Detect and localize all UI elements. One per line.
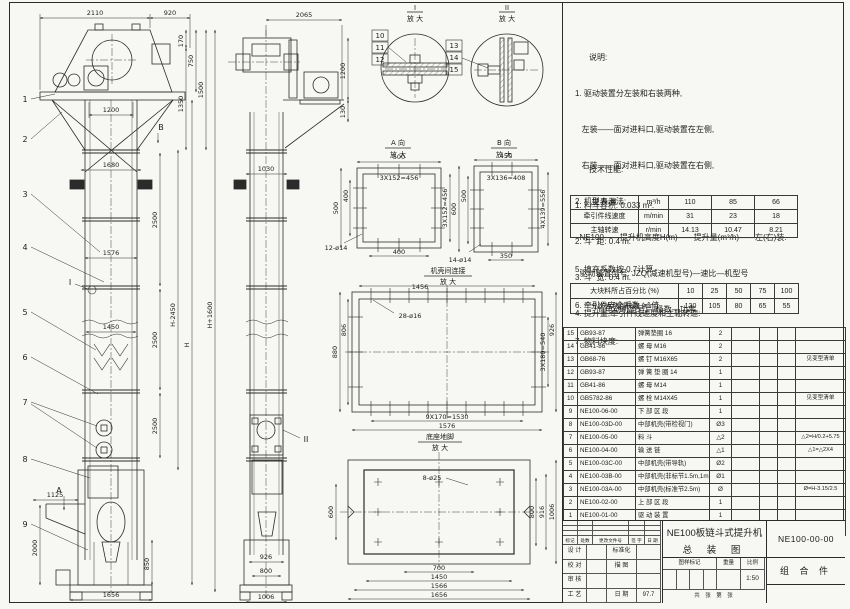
cell-qty: Ø3 (710, 419, 732, 432)
cell-code: NE100-03D-00 (578, 419, 636, 432)
cell-name: 弹 簧 垫 圈 14 (636, 367, 710, 380)
cell-no: 5 (564, 458, 578, 471)
detail-title: I (414, 4, 416, 12)
dim-label: 1450 (431, 573, 448, 581)
right-panel: 说明: 1. 驱动装置分左装和右装两种, 左装——面对进料口,驱动装置在左侧, … (562, 2, 845, 603)
cell-unit_w (760, 484, 778, 497)
cell-c3: 8.21 (755, 224, 798, 238)
cell-c3: 18 (755, 210, 798, 224)
holes-label: 8-ø25 (423, 474, 442, 482)
title-block-revision-area: 标记 处数 更改文件号 签 字 日 期 设 计 标准化 校 对 描 图 审 核 … (563, 521, 663, 603)
cell-no: 8 (564, 419, 578, 432)
cell-unit_w (760, 406, 778, 419)
detail-subtitle: 放 大 (440, 277, 456, 286)
table-row: 提 升 量m³/h1108566 (571, 196, 798, 210)
table-row: 4NE100-03B-00中部机壳(非标节1.5m,1m)Ø1 (564, 471, 846, 484)
cell-remark (796, 497, 846, 510)
dim-label: 3X152=456 (380, 174, 419, 182)
cell-material (732, 497, 760, 510)
cell-name: 下 部 区 段 (636, 406, 710, 419)
table-row: 允许大块料块度 (mm)130105806555 (571, 299, 799, 314)
dim-label: 400 (342, 190, 350, 202)
cell-code: GB5782-86 (578, 393, 636, 406)
dim-label: 750 (187, 55, 195, 67)
cell-remark (796, 458, 846, 471)
cell-name: 弹簧垫圈 16 (636, 328, 710, 341)
cell-no: 4 (564, 471, 578, 484)
dim-label: 1576 (439, 422, 456, 430)
dim-label: H-2450 (169, 303, 177, 327)
detail-ii (446, 12, 543, 106)
cell-qty: 1 (710, 367, 732, 380)
tech-title: 技术性能: (575, 164, 700, 176)
cell-unit_w (760, 341, 778, 354)
cell-unit: r/min (639, 224, 669, 238)
cell-material (732, 328, 760, 341)
cell-name: 中部机壳(非标节1.5m,1m) (636, 471, 710, 484)
cell-c5: 55 (775, 299, 799, 314)
dim-label: 926 (548, 324, 556, 336)
table-row: 5NE100-03C-00中部机壳(带导轨)Ø2 (564, 458, 846, 471)
balloon-number: 8 (22, 455, 27, 464)
product-name: NE100板链斗式提升机 (663, 525, 766, 539)
dim-label: 9X170=1530 (426, 413, 469, 421)
cell-remark (796, 419, 846, 432)
callout-number: 11 (376, 44, 385, 52)
cell-code: GB41-86 (578, 341, 636, 354)
cell-total_w (778, 471, 796, 484)
cell-material (732, 406, 760, 419)
lump-size-table: 大块料所占百分比 (%)10255075100允许大块料块度 (mm)13010… (570, 283, 799, 314)
cell-material (732, 393, 760, 406)
view-title: B 向 (497, 138, 511, 147)
holes-label: 28-ø16 (399, 312, 422, 320)
cell-qty: Ø2 (710, 458, 732, 471)
cell-c2: 23 (712, 210, 755, 224)
dim-label: 3X152=456 (441, 189, 449, 228)
balloon-number: 4 (22, 243, 27, 252)
cell-label: 牵引件线速度 (571, 210, 639, 224)
date-value: 97.7 (637, 589, 661, 604)
role-label: 校 对 (563, 560, 587, 575)
tech-line: 5. 填充系数按 0.7计算. (575, 264, 661, 276)
rev-header: 日 期 (645, 536, 661, 545)
cell-remark (796, 471, 846, 484)
cell-c2: 25 (703, 284, 727, 299)
balloon-number: 2 (22, 135, 27, 144)
cell-unit_w (760, 458, 778, 471)
cell-code: NE100-03B-00 (578, 471, 636, 484)
balloon-number: 1 (22, 95, 27, 104)
dim-label: 1006 (548, 504, 556, 521)
cell-label: 提 升 量 (571, 196, 639, 210)
dim-label: 1500 (197, 82, 205, 99)
cell-material (732, 484, 760, 497)
role-label: 设 计 (563, 545, 587, 560)
note-line: 左装——面对进料口,驱动装置在左侧, (575, 124, 787, 136)
parts-list-table: 15GB93-87弹簧垫圈 16214GB41-86螺 母 M16213GB68… (563, 327, 846, 536)
cell-code: GB68-76 (578, 354, 636, 367)
cell-qty: 1 (710, 380, 732, 393)
dim-label: 2500 (151, 332, 159, 349)
dim-label: 1350 (177, 96, 185, 113)
part-type: 组 合 件 (767, 558, 845, 585)
cell-material (732, 432, 760, 445)
cell-total_w (778, 393, 796, 406)
dim-label: 2000 (31, 540, 39, 557)
detail-subtitle: 放 大 (407, 14, 423, 23)
cell-name: 料 斗 (636, 432, 710, 445)
cell-c4: 75 (751, 284, 775, 299)
cell-c1: 14.13 (669, 224, 712, 238)
cell-name: 中部机壳(带检视门) (636, 419, 710, 432)
cell-material (732, 341, 760, 354)
cell-unit_w (760, 497, 778, 510)
callout-number: 12 (376, 56, 385, 64)
cell-remark: △2=H/0.2+5.75 (796, 432, 846, 445)
view-a-marker: A (56, 486, 62, 495)
cell-unit_w (760, 419, 778, 432)
dim-label: 1576 (103, 249, 120, 257)
callout-number: 10 (376, 32, 385, 40)
cell-name: 螺 母 M14 (636, 380, 710, 393)
cell-unit_w (760, 432, 778, 445)
dim-label: H (183, 342, 191, 347)
cell-remark: Ø=H-3.15/2.5 (796, 484, 846, 497)
cell-unit_w (760, 328, 778, 341)
cell-unit: m/min (639, 210, 669, 224)
table-row: 13GB68-76螺 钉 M16X652见变型清单 (564, 354, 846, 367)
cell-code: GB93-87 (578, 328, 636, 341)
dim-label: 170 (177, 35, 185, 47)
dim-label: 2500 (151, 212, 159, 229)
dim-label: 800 (528, 506, 536, 518)
cell-c5: 100 (775, 284, 799, 299)
cell-c1: 130 (679, 299, 703, 314)
engineering-drawing-sheet: 2110 920 170 750 1350 1500 1200 1680 157… (0, 0, 850, 609)
cell-no: 10 (564, 393, 578, 406)
dim-label: 1450 (103, 323, 120, 331)
title-block: 标记 处数 更改文件号 签 字 日 期 设 计 标准化 校 对 描 图 审 核 … (563, 520, 845, 603)
table-row: 10GB5782-86螺 栓 M14X451见变型清单 (564, 393, 846, 406)
cell-qty: Ø (710, 484, 732, 497)
view-b-marker: B (158, 123, 164, 132)
dim-label: 1006 (258, 593, 275, 601)
dim-label: 4X139=556 (539, 190, 547, 229)
dim-label: 450 (500, 152, 512, 160)
signature-grid: 设 计 标准化 校 对 描 图 审 核 工 艺 日 期 97.7 (563, 545, 662, 603)
cell-material (732, 419, 760, 432)
balloon-number: 9 (22, 520, 27, 529)
revision-grid: 标记 处数 更改文件号 签 字 日 期 (563, 521, 662, 545)
holes-label: 14-ø14 (449, 256, 472, 264)
callout-number: 15 (450, 66, 459, 74)
dim-label: 1200 (339, 63, 347, 80)
cell-name: 中部机壳(带导轨) (636, 458, 710, 471)
cell-qty: 2 (710, 328, 732, 341)
cell-c1: 110 (669, 196, 712, 210)
cell-no: 15 (564, 328, 578, 341)
table-row: 6NE100-04-00输 送 链△1△1=△2X4 (564, 445, 846, 458)
cell-label: 允许大块料块度 (mm) (571, 299, 679, 314)
cell-name: 螺 钉 M16X65 (636, 354, 710, 367)
note-line: 1. 驱动装置分左装和右装两种, (575, 88, 787, 100)
cell-code: NE100-05-00 (578, 432, 636, 445)
title-block-right: NE100-00-00 组 合 件 (767, 521, 845, 603)
view-title: A 向 (391, 138, 405, 147)
dim-label: H+1600 (206, 302, 214, 329)
detail-ii-marker: II (304, 435, 309, 444)
cell-c1: 31 (669, 210, 712, 224)
cell-total_w (778, 380, 796, 393)
cell-remark (796, 380, 846, 393)
table-row: 7NE100-05-00料 斗△2△2=H/0.2+5.75 (564, 432, 846, 445)
detail-title: 底座地脚 (426, 432, 454, 441)
cell-material (732, 445, 760, 458)
cell-qty: △1 (710, 445, 732, 458)
table-row: 9NE100-06-00下 部 区 段1 (564, 406, 846, 419)
balloon-number: 3 (22, 190, 27, 199)
cell-c1: 10 (679, 284, 703, 299)
cell-total_w (778, 419, 796, 432)
detail-title: 机壳间连接 (431, 266, 466, 275)
role-label: 描 图 (607, 560, 637, 575)
rev-header: 处数 (578, 536, 593, 545)
cell-qty: 2 (710, 341, 732, 354)
role-label: 工 艺 (563, 589, 587, 604)
dim-label: 700 (433, 564, 445, 572)
cell-qty: Ø1 (710, 471, 732, 484)
cell-unit_w (760, 354, 778, 367)
cell-qty: 2 (710, 354, 732, 367)
dim-label: 400 (393, 248, 405, 256)
detail-subtitle: 放 大 (432, 443, 448, 452)
cell-total_w (778, 484, 796, 497)
cell-c2: 85 (712, 196, 755, 210)
cell-name: 上 部 区 段 (636, 497, 710, 510)
role-label: 标准化 (607, 545, 637, 560)
dim-label: 1680 (103, 161, 120, 169)
cell-code: NE100-03A-00 (578, 484, 636, 497)
drawing-number: NE100-00-00 (767, 521, 845, 558)
table-row: 11GB41-86螺 母 M141 (564, 380, 846, 393)
cell-total_w (778, 341, 796, 354)
table-row: 主轴转速r/min14.1310.478.21 (571, 224, 798, 238)
dim-label: 3X136=408 (487, 174, 526, 182)
dim-label: 926 (260, 553, 272, 561)
holes-label: 12-ø14 (325, 244, 348, 252)
dim-label: 916 (538, 506, 546, 518)
cell-c3: 66 (755, 196, 798, 210)
callout-number: 14 (450, 54, 459, 62)
cell-material (732, 367, 760, 380)
dim-label: 1656 (103, 591, 120, 599)
dim-label: 800 (260, 567, 272, 575)
cell-remark (796, 341, 846, 354)
cell-unit_w (760, 471, 778, 484)
cell-code: GB41-86 (578, 380, 636, 393)
cell-no: 9 (564, 406, 578, 419)
dim-label: 806 (340, 324, 348, 336)
casing-joint-detail (340, 276, 556, 430)
table-row: 8NE100-03D-00中部机壳(带检视门)Ø3 (564, 419, 846, 432)
capacity-table: 提 升 量m³/h1108566牵引件线速度m/min312318主轴转速r/m… (570, 195, 798, 238)
dim-label: 3X180=540 (539, 333, 547, 372)
rev-header: 更改文件号 (593, 536, 629, 545)
cell-qty: 1 (710, 406, 732, 419)
cell-no: 14 (564, 341, 578, 354)
table-row: 12GB93-87弹 簧 垫 圈 141 (564, 367, 846, 380)
cell-total_w (778, 458, 796, 471)
balloon-number: 7 (22, 398, 27, 407)
cell-no: 2 (564, 497, 578, 510)
table-row: 牵引件线速度m/min312318 (571, 210, 798, 224)
cell-code: NE100-04-00 (578, 445, 636, 458)
role-label: 审 核 (563, 574, 587, 589)
dim-label: 1566 (431, 582, 448, 590)
dim-label: 350 (500, 252, 512, 260)
dim-label: 1200 (103, 106, 120, 114)
cell-total_w (778, 367, 796, 380)
cell-total_w (778, 445, 796, 458)
cell-total_w (778, 328, 796, 341)
cell-qty: 1 (710, 497, 732, 510)
detail-title: II (505, 4, 509, 12)
cell-no: 3 (564, 484, 578, 497)
cell-unit_w (760, 445, 778, 458)
view-a-detail (341, 148, 450, 256)
dim-label: 600 (327, 506, 335, 518)
cell-material (732, 458, 760, 471)
role-label (607, 574, 637, 589)
sheets-label: 共 张 第 张 (663, 589, 766, 603)
dim-label: 500 (460, 190, 468, 202)
cell-code: NE100-03C-00 (578, 458, 636, 471)
role-label: 日 期 (607, 589, 637, 604)
sheet-name: 总 装 图 (663, 542, 766, 556)
scale-value: 1:50 (741, 569, 765, 590)
dim-label: 920 (164, 9, 176, 17)
cell-remark (796, 367, 846, 380)
dim-label: 2110 (87, 9, 104, 17)
table-row: 2NE100-02-00上 部 区 段1 (564, 497, 846, 510)
dim-label: 880 (331, 346, 339, 358)
drawing-views: 2110 920 170 750 1350 1500 1200 1680 157… (0, 0, 562, 609)
cell-qty: △2 (710, 432, 732, 445)
dim-label: 600 (450, 203, 458, 215)
table-row: 14GB41-86螺 母 M162 (564, 341, 846, 354)
cell-remark: 见变型清单 (796, 393, 846, 406)
cell-unit_w (760, 393, 778, 406)
notes-title: 说明: (575, 52, 787, 64)
view-b-detail (459, 148, 548, 260)
cell-c4: 65 (751, 299, 775, 314)
cell-code: NE100-06-00 (578, 406, 636, 419)
rev-header: 标记 (563, 536, 578, 545)
cell-c2: 105 (703, 299, 727, 314)
table-row: 3NE100-03A-00中部机壳(标准节2.5m)ØØ=H-3.15/2.5 (564, 484, 846, 497)
cell-total_w (778, 406, 796, 419)
cell-name: 中部机壳(标准节2.5m) (636, 484, 710, 497)
cell-no: 13 (564, 354, 578, 367)
dim-label: 1030 (258, 165, 275, 173)
cell-unit: m³/h (639, 196, 669, 210)
cell-label: 主轴转速 (571, 224, 639, 238)
cell-no: 7 (564, 432, 578, 445)
cell-total_w (778, 432, 796, 445)
detail-i-marker: I (69, 278, 71, 287)
cell-total_w (778, 354, 796, 367)
rev-header: 签 字 (629, 536, 645, 545)
dim-label: 1456 (412, 283, 429, 291)
cell-code: GB93-87 (578, 367, 636, 380)
cell-code: NE100-02-00 (578, 497, 636, 510)
title-block-center: NE100板链斗式提升机 总 装 图 图样标记 重量 比例 1:50 共 张 第… (663, 521, 767, 603)
cell-c2: 10.47 (712, 224, 755, 238)
cell-c3: 80 (727, 299, 751, 314)
cell-remark (796, 328, 846, 341)
dim-label: 500 (332, 202, 340, 214)
dim-label: 130 (339, 106, 347, 118)
cell-no: 12 (564, 367, 578, 380)
cell-material (732, 471, 760, 484)
callout-number: 13 (450, 42, 459, 50)
cell-unit_w (760, 367, 778, 380)
cell-label: 大块料所占百分比 (%) (571, 284, 679, 299)
balloon-number: 5 (22, 308, 27, 317)
cell-material (732, 354, 760, 367)
cell-remark (796, 406, 846, 419)
cell-total_w (778, 497, 796, 510)
table-row: 大块料所占百分比 (%)10255075100 (571, 284, 799, 299)
dim-label: 2500 (151, 418, 159, 435)
dim-label: 1656 (431, 591, 448, 599)
cell-no: 11 (564, 380, 578, 393)
balloon-number: 6 (22, 353, 27, 362)
cell-name: 输 送 链 (636, 445, 710, 458)
cell-name: 螺 母 M16 (636, 341, 710, 354)
cell-name: 螺 栓 M14X45 (636, 393, 710, 406)
dim-label: 500 (393, 153, 405, 161)
dim-label: 850 (143, 558, 151, 570)
cell-unit_w (760, 380, 778, 393)
cell-qty: 1 (710, 393, 732, 406)
cell-c3: 50 (727, 284, 751, 299)
cell-remark: 见变型清单 (796, 354, 846, 367)
table-row: 15GB93-87弹簧垫圈 162 (564, 328, 846, 341)
cell-material (732, 380, 760, 393)
detail-subtitle: 放 大 (499, 14, 515, 23)
dim-label: 2065 (296, 11, 313, 19)
cell-remark: △1=△2X4 (796, 445, 846, 458)
cell-no: 6 (564, 445, 578, 458)
